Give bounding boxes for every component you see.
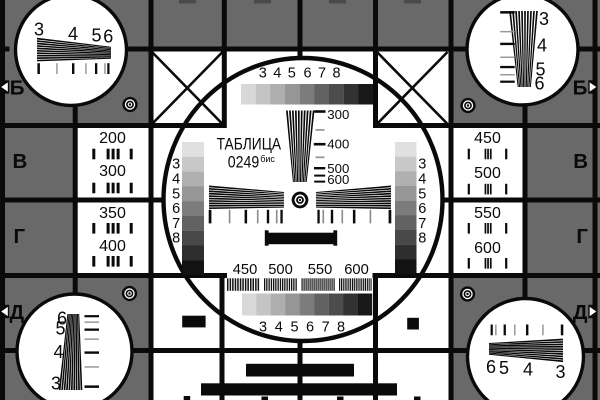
- svg-text:400: 400: [327, 137, 349, 152]
- svg-text:3: 3: [539, 9, 549, 29]
- svg-text:200: 200: [99, 130, 126, 147]
- svg-text:5: 5: [290, 320, 298, 336]
- svg-text:600: 600: [344, 262, 369, 278]
- svg-text:7: 7: [322, 320, 330, 336]
- svg-text:3: 3: [259, 66, 267, 82]
- svg-text:Г: Г: [576, 225, 588, 248]
- svg-text:600: 600: [474, 240, 501, 257]
- svg-text:3: 3: [51, 373, 61, 393]
- svg-text:4: 4: [523, 360, 533, 380]
- svg-text:8: 8: [337, 320, 345, 336]
- svg-text:3: 3: [555, 362, 565, 382]
- svg-text:300: 300: [327, 107, 349, 122]
- svg-text:5: 5: [55, 318, 65, 338]
- svg-text:Д: Д: [10, 301, 25, 324]
- svg-text:5: 5: [499, 358, 509, 378]
- svg-text:8: 8: [172, 231, 180, 247]
- svg-text:4: 4: [53, 342, 63, 362]
- svg-text:3: 3: [259, 320, 267, 336]
- svg-text:6: 6: [103, 26, 113, 46]
- svg-text:3: 3: [172, 157, 180, 173]
- svg-text:Б: Б: [10, 76, 25, 99]
- svg-text:300: 300: [99, 163, 126, 180]
- svg-text:3: 3: [418, 157, 426, 173]
- svg-text:6: 6: [534, 73, 544, 93]
- svg-text:Б: Б: [573, 76, 588, 99]
- svg-text:3: 3: [34, 19, 44, 39]
- svg-text:ТАБЛИЦА: ТАБЛИЦА: [217, 136, 282, 154]
- svg-text:550: 550: [474, 205, 501, 222]
- svg-text:4: 4: [537, 35, 547, 55]
- svg-text:4: 4: [273, 66, 281, 82]
- svg-text:400: 400: [99, 238, 126, 255]
- svg-text:7: 7: [172, 216, 180, 232]
- svg-text:500: 500: [268, 262, 293, 278]
- svg-text:0249: 0249: [228, 152, 260, 171]
- svg-text:8: 8: [332, 66, 340, 82]
- svg-text:6: 6: [418, 201, 426, 217]
- svg-text:4: 4: [172, 172, 180, 188]
- svg-text:6: 6: [306, 320, 314, 336]
- svg-text:Г: Г: [14, 225, 26, 248]
- svg-text:350: 350: [99, 205, 126, 222]
- svg-text:5: 5: [172, 186, 180, 202]
- svg-text:5: 5: [418, 186, 426, 202]
- svg-text:В: В: [573, 150, 588, 173]
- svg-text:5: 5: [288, 66, 296, 82]
- svg-text:6: 6: [172, 201, 180, 217]
- svg-text:Д: Д: [573, 301, 588, 324]
- svg-text:600: 600: [327, 172, 349, 187]
- svg-text:500: 500: [474, 165, 501, 182]
- svg-text:550: 550: [308, 262, 333, 278]
- svg-text:450: 450: [233, 262, 258, 278]
- svg-text:8: 8: [418, 231, 426, 247]
- svg-text:4: 4: [68, 24, 78, 44]
- svg-text:5: 5: [91, 25, 101, 45]
- svg-text:7: 7: [318, 66, 326, 82]
- svg-text:450: 450: [474, 130, 501, 147]
- svg-text:7: 7: [418, 216, 426, 232]
- svg-text:6: 6: [486, 357, 496, 377]
- svg-text:6: 6: [303, 66, 311, 82]
- svg-text:бис: бис: [260, 154, 275, 164]
- svg-text:В: В: [13, 150, 28, 173]
- svg-text:4: 4: [275, 320, 283, 336]
- svg-text:4: 4: [418, 172, 426, 188]
